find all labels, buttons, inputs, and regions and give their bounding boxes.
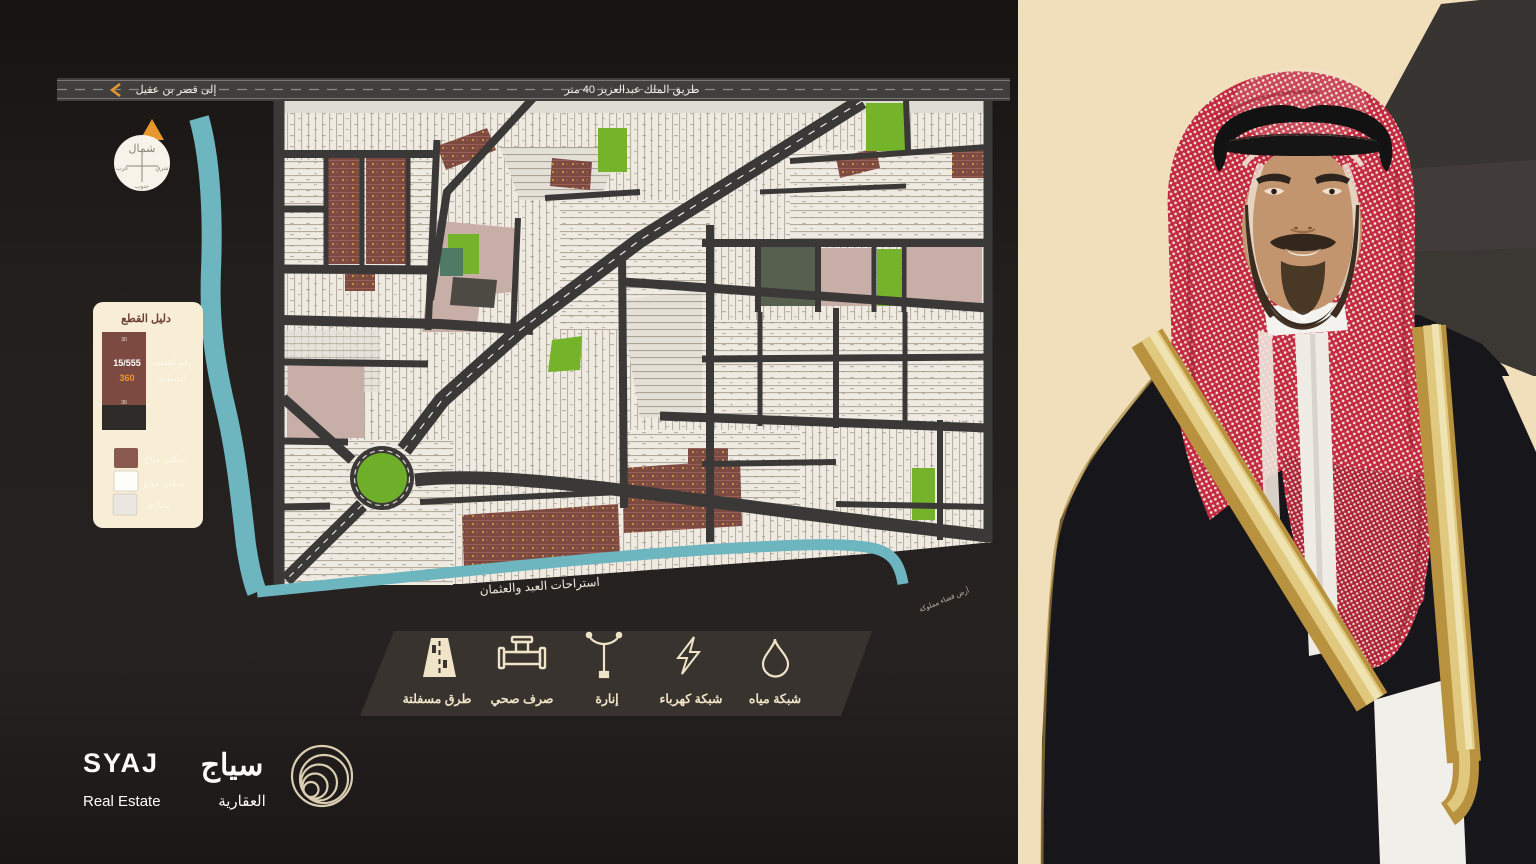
svg-text:إنارة: إنارة: [595, 692, 619, 707]
svg-text:غرب: غرب: [116, 165, 128, 172]
svg-text:إلى قصر بن عقيل: إلى قصر بن عقيل: [136, 84, 217, 96]
svg-text:رقم القطعة: رقم القطعة: [153, 358, 192, 367]
svg-text:سياج: سياج: [201, 749, 264, 783]
svg-text:Real Estate: Real Estate: [83, 793, 161, 810]
svg-text:شرق: شرق: [156, 166, 169, 172]
svg-text:سكني متاح: سكني متاح: [144, 454, 185, 465]
svg-text:شبكة مياه: شبكة مياه: [749, 692, 802, 706]
svg-text:360: 360: [119, 373, 134, 383]
svg-text:تجاري: تجاري: [147, 500, 170, 511]
svg-text:SYAJ: SYAJ: [83, 748, 159, 778]
svg-text:العقارية: العقارية: [218, 793, 266, 810]
svg-text:جنوب: جنوب: [135, 184, 150, 190]
svg-text:طرق مسفلتة: طرق مسفلتة: [403, 692, 472, 707]
svg-text:سكني مباع: سكني مباع: [144, 478, 185, 489]
svg-text:المساحة: المساحة: [158, 374, 186, 383]
svg-text:15/555: 15/555: [113, 358, 141, 368]
svg-text:30: 30: [121, 400, 127, 406]
svg-text:طريق الملك عبدالعزيز 40 متر: طريق الملك عبدالعزيز 40 متر: [563, 84, 699, 96]
svg-text:شبكة كهرباء: شبكة كهرباء: [659, 692, 723, 707]
svg-text:صرف صحي: صرف صحي: [490, 692, 553, 707]
svg-text:دليل القطع: دليل القطع: [121, 313, 171, 325]
svg-text:30: 30: [121, 337, 127, 343]
